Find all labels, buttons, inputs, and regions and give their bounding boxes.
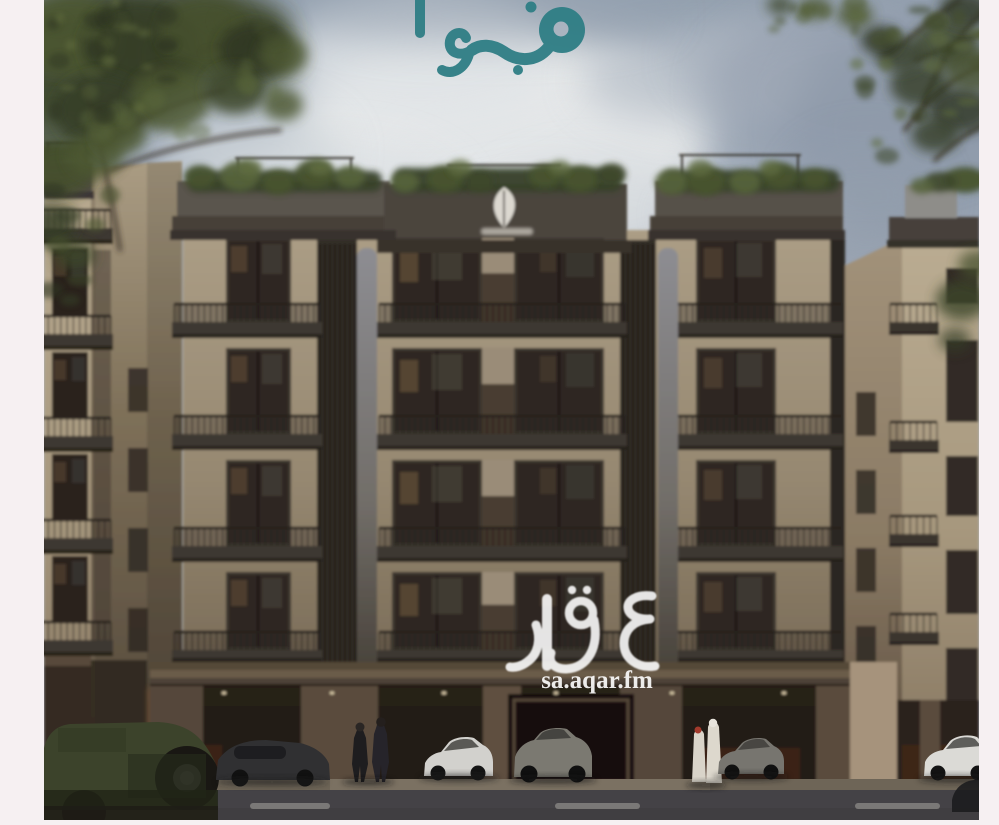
svg-text:sa.aqar.fm: sa.aqar.fm <box>541 667 653 694</box>
